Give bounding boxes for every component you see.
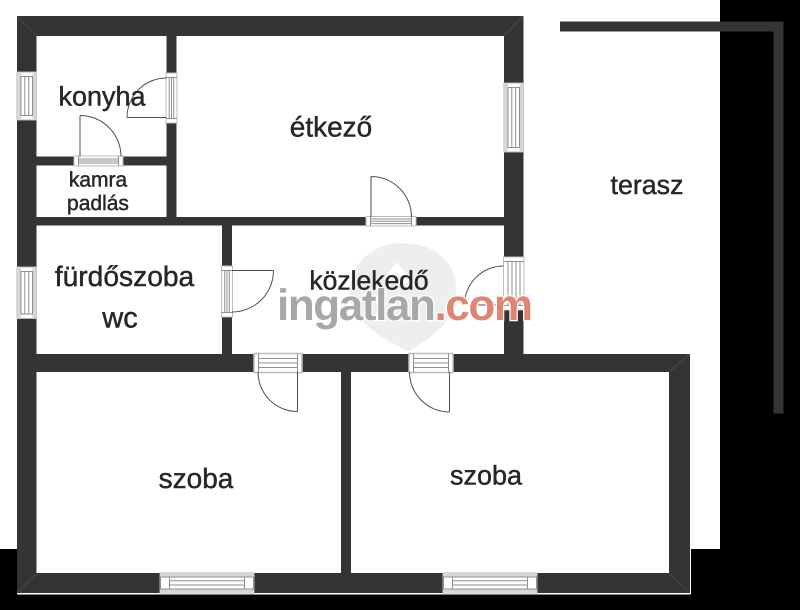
svg-text:kamra: kamra <box>69 169 128 192</box>
svg-text:terasz: terasz <box>611 170 684 200</box>
svg-text:wc: wc <box>101 303 137 335</box>
svg-text:étkező: étkező <box>290 112 373 143</box>
svg-text:padlás: padlás <box>67 192 129 215</box>
svg-text:fürdőszoba: fürdőszoba <box>55 260 195 292</box>
svg-text:ingatlan.com: ingatlan.com <box>277 281 532 330</box>
svg-text:konyha: konyha <box>58 82 146 112</box>
svg-text:szoba: szoba <box>450 461 523 491</box>
svg-text:szoba: szoba <box>159 463 234 494</box>
